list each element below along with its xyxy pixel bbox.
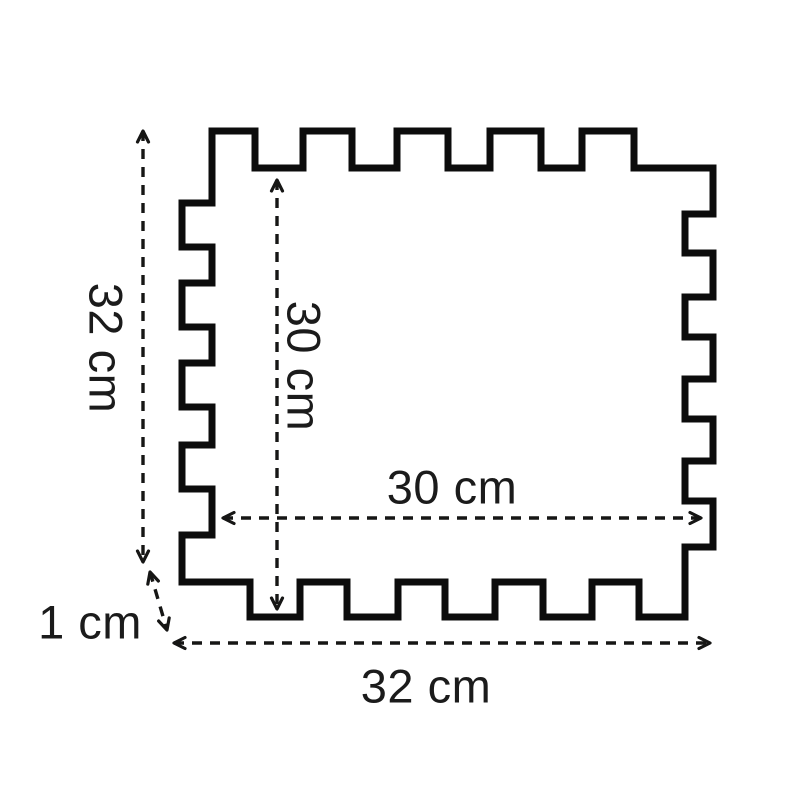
- label-outer-width: 32 cm: [361, 660, 492, 713]
- diagram-canvas: 32 cm 30 cm 30 cm 32 cm 1 cm: [0, 0, 800, 800]
- label-outer-height: 32 cm: [80, 283, 133, 414]
- diagram-page: 32 cm 30 cm 30 cm 32 cm 1 cm: [0, 0, 800, 800]
- label-inner-width: 30 cm: [387, 461, 518, 514]
- dim-line-tab-depth: [150, 572, 167, 630]
- label-tab-depth: 1 cm: [38, 596, 142, 649]
- tile-outline-path: [182, 131, 713, 617]
- label-inner-height: 30 cm: [278, 301, 331, 432]
